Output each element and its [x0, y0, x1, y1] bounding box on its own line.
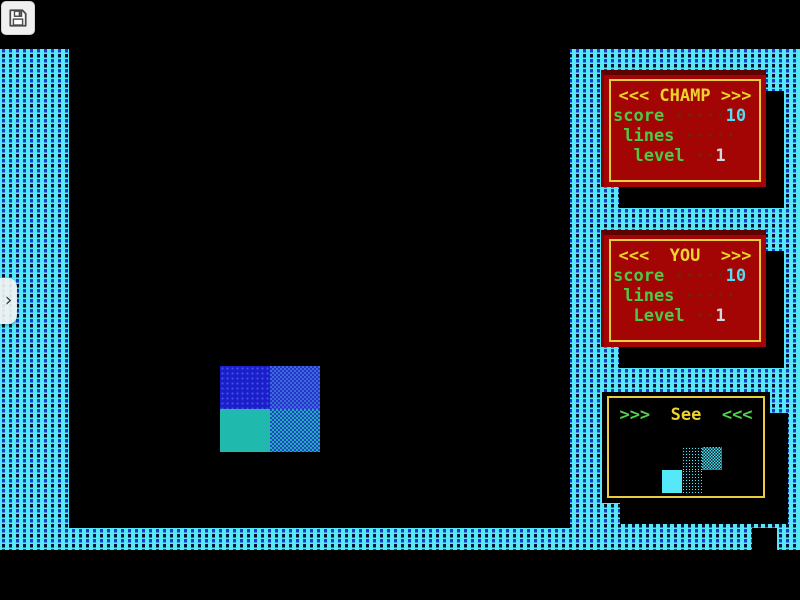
champ-lines-label: lines — [613, 126, 674, 146]
champ-level-label: level — [613, 146, 685, 166]
next-panel: >>> See <<< — [602, 392, 770, 503]
active-piece — [220, 366, 320, 452]
champ-score-row: score ·····10 — [604, 106, 766, 126]
dot-leader: ····· — [674, 126, 735, 146]
you-score-value: 10 — [726, 266, 746, 286]
next-piece-cell — [662, 470, 682, 493]
dot-leader: ····· — [664, 266, 725, 286]
next-piece-cell — [682, 470, 702, 493]
you-lines-label: lines — [613, 286, 674, 306]
next-piece-cell — [682, 447, 702, 470]
you-level-value: 1 — [715, 306, 725, 326]
dot-leader: ·· — [685, 306, 716, 326]
you-panel: <<< YOU >>> score ·····10 lines ····· Le… — [601, 230, 766, 347]
sidebar-expand-tab[interactable]: › — [0, 278, 17, 324]
next-piece-cell — [702, 447, 722, 470]
champ-panel-title: <<< CHAMP >>> — [604, 75, 766, 106]
champ-lines-row: lines ····· — [604, 126, 766, 146]
you-level-label: Level — [613, 306, 685, 326]
chevron-right-icon: › — [5, 291, 13, 310]
you-panel-title: <<< YOU >>> — [604, 235, 766, 266]
bottom-strip-notch — [752, 528, 777, 550]
dot-leader: ·· — [685, 146, 716, 166]
next-panel-title-word: See — [671, 405, 702, 425]
piece-cell-blue-dotted — [220, 366, 270, 409]
top-bar — [0, 0, 800, 49]
piece-cell-blue-checker — [270, 366, 320, 409]
champ-panel: <<< CHAMP >>> score ·····10 lines ····· … — [601, 70, 766, 187]
dot-leader: ····· — [674, 286, 735, 306]
champ-score-value: 10 — [726, 106, 746, 126]
champ-score-label: score — [613, 106, 664, 126]
bottom-bar — [0, 550, 800, 600]
game-screen: <<< CHAMP >>> score ·····10 lines ····· … — [0, 0, 800, 600]
next-panel-title: >>> See <<< — [602, 392, 770, 425]
chevrons-right-icon: >>> — [619, 405, 670, 425]
piece-cell-teal-checker — [270, 409, 320, 452]
floppy-save-icon — [7, 7, 29, 29]
you-score-label: score — [613, 266, 664, 286]
you-lines-row: lines ····· — [604, 286, 766, 306]
playfield — [69, 49, 570, 528]
champ-level-value: 1 — [715, 146, 725, 166]
you-level-row: Level ··1 — [604, 306, 766, 326]
champ-level-row: level ··1 — [604, 146, 766, 166]
dot-leader: ····· — [664, 106, 725, 126]
piece-cell-teal-solid — [220, 409, 270, 452]
save-button[interactable] — [1, 1, 35, 35]
chevrons-left-icon: <<< — [701, 405, 752, 425]
you-score-row: score ·····10 — [604, 266, 766, 286]
